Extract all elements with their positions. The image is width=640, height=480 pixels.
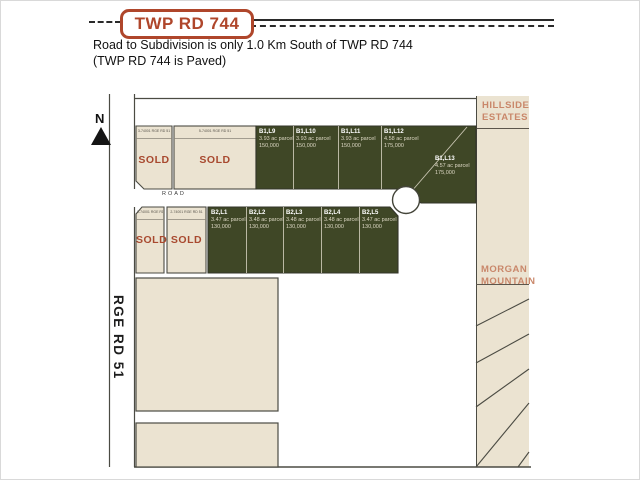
- lot-b1-l12-label: B1,L12 4.58 ac parcel 175,000: [384, 129, 419, 149]
- sold-lot-3-status: SOLD: [136, 234, 164, 246]
- lot-b2-l5-label: B2,L5 3.47 ac parcel 130,000: [362, 210, 397, 230]
- plat-map-page: TWP RD 744 Road to Subdivision is only 1…: [0, 0, 640, 480]
- southwest-parcel-lower: [136, 423, 278, 467]
- hillside-estates-label: HILLSIDE ESTATES: [482, 100, 534, 123]
- lot-b1-l10-label: B1,L10 3.93 ac parcel 150,000: [296, 129, 331, 149]
- lot-b2-l1-label: B2,L1 3.47 ac parcel 130,000: [211, 210, 246, 230]
- lot-b1-l9-label: B1,L9 3.93 ac parcel 150,000: [259, 129, 294, 149]
- road-label: ROAD: [162, 191, 186, 197]
- sold-lot-1-address: 3-74001 RGE RD 51: [137, 129, 171, 133]
- rge-rd-51-label: RGE RD 51: [111, 295, 126, 380]
- twp-rd-744-badge-label: TWP RD 744: [135, 14, 240, 34]
- sold-lot-2-status: SOLD: [174, 154, 256, 166]
- lot-b2-l2-label: B2,L2 3.48 ac parcel 130,000: [249, 210, 284, 230]
- plat-map-drawing: [1, 1, 640, 480]
- lot-b2-l3-label: B2,L3 3.48 ac parcel 130,000: [286, 210, 321, 230]
- lot-b2-l4-label: B2,L4 3.48 ac parcel 130,000: [324, 210, 359, 230]
- north-arrow-icon: [91, 127, 111, 145]
- southwest-parcel-upper: [136, 278, 278, 411]
- sold-lot-1-status: SOLD: [136, 154, 172, 166]
- north-label: N: [95, 111, 104, 126]
- morgan-mountain-label: MORGAN MOUNTAIN: [481, 264, 533, 287]
- twp-rd-744-badge: TWP RD 744: [120, 9, 254, 39]
- lot-b1-l11-label: B1,L11 3.93 ac parcel 150,000: [341, 129, 376, 149]
- sold-lot-4-address: 2-74001 RGE RD 51: [168, 210, 205, 214]
- sold-lot-2-address: 5-74001 RGE RD 51: [175, 129, 255, 133]
- lot-b1-l13-label: B1,L13 4.57 ac parcel 175,000: [435, 156, 470, 176]
- sold-lot-4-status: SOLD: [167, 234, 206, 246]
- sold-lot-3-address: 1-74001 RGE RD 51: [137, 210, 163, 214]
